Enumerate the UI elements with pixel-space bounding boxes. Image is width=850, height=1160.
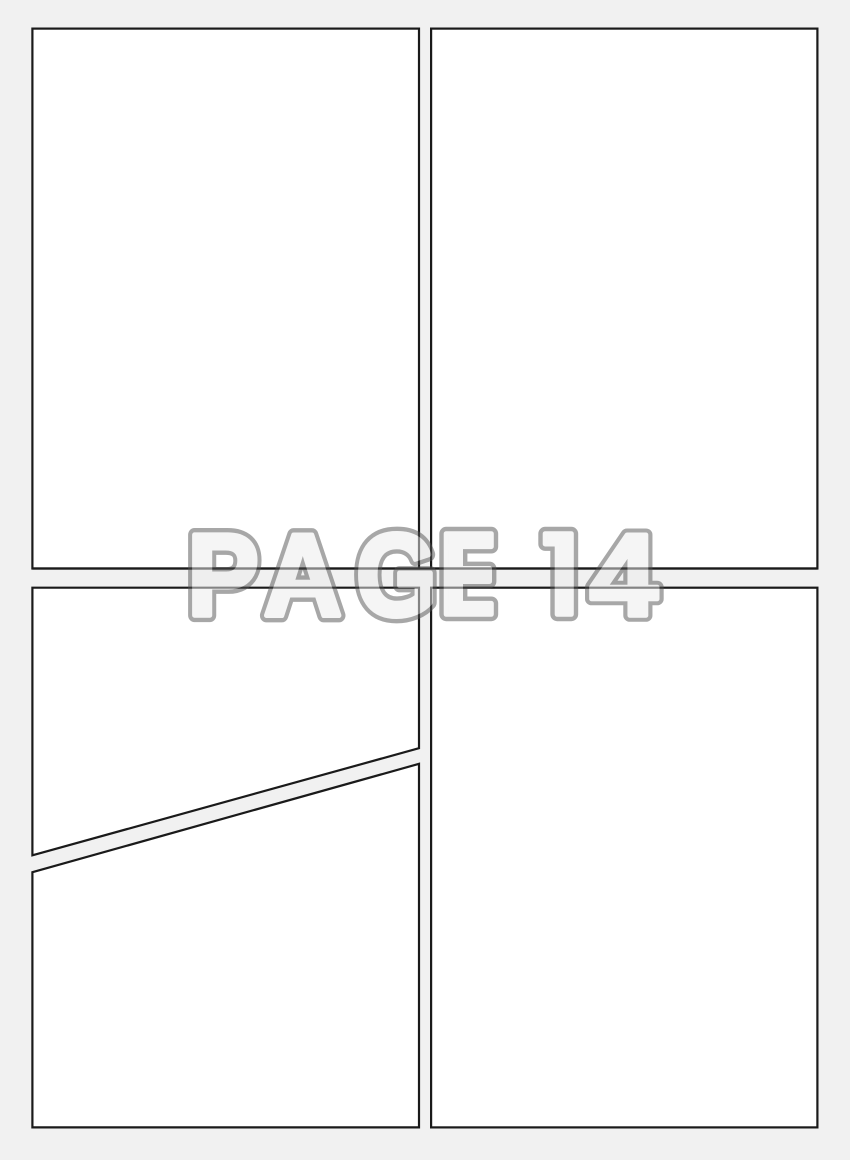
svg-text:4: 4 xyxy=(590,511,658,641)
svg-text:G: G xyxy=(356,511,437,641)
svg-text:A: A xyxy=(264,510,342,641)
svg-text:P: P xyxy=(187,509,259,640)
